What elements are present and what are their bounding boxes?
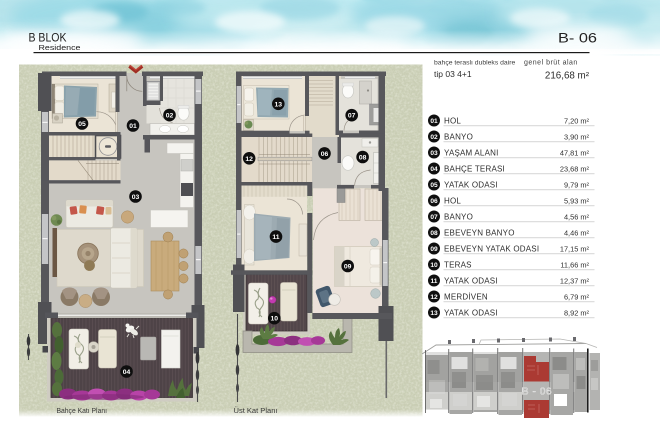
svg-text:3,90 m²: 3,90 m² (564, 132, 590, 141)
svg-text:03: 03 (132, 194, 140, 201)
svg-text:05: 05 (430, 182, 438, 189)
svg-text:47,81 m²: 47,81 m² (560, 148, 590, 157)
svg-text:HOL: HOL (444, 196, 461, 205)
svg-text:HOL: HOL (444, 116, 461, 125)
svg-text:08: 08 (359, 155, 367, 162)
svg-text:8,92 m²: 8,92 m² (564, 308, 590, 317)
svg-text:BANYO: BANYO (444, 132, 473, 141)
svg-text:12,37 m²: 12,37 m² (560, 276, 590, 285)
svg-text:YATAK ODASI: YATAK ODASI (444, 276, 498, 285)
svg-text:BAHÇE TERASI: BAHÇE TERASI (444, 164, 505, 173)
svg-text:07: 07 (430, 214, 438, 221)
svg-text:EBEVEYN BANYO: EBEVEYN BANYO (444, 228, 515, 237)
svg-text:10: 10 (271, 316, 279, 323)
svg-text:EBEVEYN YATAK ODASI: EBEVEYN YATAK ODASI (444, 244, 539, 253)
svg-text:Üst Kat Planı: Üst Kat Planı (234, 407, 278, 415)
svg-text:YATAK ODASI: YATAK ODASI (444, 180, 498, 189)
svg-text:MERDİVEN: MERDİVEN (444, 292, 488, 301)
svg-text:10: 10 (430, 262, 438, 269)
svg-text:17,15 m²: 17,15 m² (560, 244, 590, 253)
svg-text:B- 06: B- 06 (558, 30, 597, 46)
svg-text:7,20 m²: 7,20 m² (564, 116, 590, 125)
svg-text:TERAS: TERAS (444, 260, 472, 269)
svg-text:06: 06 (430, 198, 438, 205)
svg-text:11: 11 (272, 234, 279, 241)
svg-text:05: 05 (78, 121, 86, 128)
svg-text:01: 01 (430, 118, 438, 125)
svg-text:12: 12 (245, 156, 253, 163)
svg-text:YAŞAM ALANI: YAŞAM ALANI (444, 148, 499, 157)
svg-text:08: 08 (430, 230, 438, 237)
svg-text:02: 02 (430, 134, 438, 141)
svg-text:04: 04 (123, 369, 131, 376)
svg-text:06: 06 (321, 151, 329, 158)
svg-text:07: 07 (348, 113, 356, 120)
svg-text:11,66 m²: 11,66 m² (560, 260, 589, 269)
svg-text:216,68 m²: 216,68 m² (545, 71, 590, 82)
svg-text:09: 09 (344, 264, 352, 271)
svg-text:tip 03 4+1: tip 03 4+1 (434, 69, 472, 79)
svg-text:9,79 m²: 9,79 m² (564, 180, 590, 189)
svg-text:BANYO: BANYO (444, 212, 473, 221)
svg-text:5,93 m²: 5,93 m² (564, 196, 590, 205)
svg-text:12: 12 (430, 294, 438, 301)
svg-text:Residence: Residence (39, 45, 81, 52)
svg-text:09: 09 (430, 246, 438, 253)
svg-text:Bahçe Katı Planı: Bahçe Katı Planı (57, 408, 108, 415)
svg-text:03: 03 (430, 150, 438, 157)
svg-text:02: 02 (166, 113, 174, 120)
svg-text:genel brüt alan: genel brüt alan (524, 60, 578, 67)
svg-text:B - 06: B - 06 (522, 387, 552, 398)
svg-text:13: 13 (430, 310, 438, 317)
svg-text:13: 13 (275, 101, 283, 108)
svg-text:01: 01 (129, 123, 137, 130)
svg-text:4,46 m²: 4,46 m² (564, 228, 590, 237)
svg-text:23,68 m²: 23,68 m² (560, 164, 590, 173)
svg-text:6,79 m²: 6,79 m² (564, 292, 590, 301)
svg-text:04: 04 (430, 166, 438, 173)
svg-text:YATAK ODASI: YATAK ODASI (444, 308, 498, 317)
svg-text:11: 11 (431, 278, 438, 285)
svg-text:bahçe teraslı dubleks daire: bahçe teraslı dubleks daire (434, 60, 515, 67)
svg-text:B BLOK: B BLOK (29, 31, 67, 45)
svg-text:4,56 m²: 4,56 m² (564, 212, 590, 221)
